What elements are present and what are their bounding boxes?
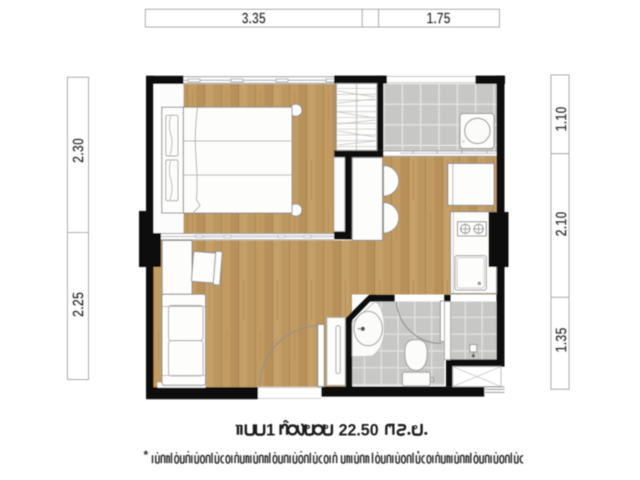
svg-text:2.25: 2.25	[71, 292, 88, 317]
svg-text:1.75: 1.75	[427, 11, 451, 28]
svg-text:2.30: 2.30	[71, 138, 88, 163]
svg-text:3.35: 3.35	[242, 11, 266, 28]
svg-text:1.35: 1.35	[554, 327, 571, 352]
svg-text:1: 1	[266, 421, 275, 439]
svg-text:22.50: 22.50	[339, 421, 379, 439]
svg-text:2.10: 2.10	[554, 212, 571, 237]
svg-text:1.10: 1.10	[554, 107, 571, 132]
svg-text:*: *	[144, 448, 149, 462]
